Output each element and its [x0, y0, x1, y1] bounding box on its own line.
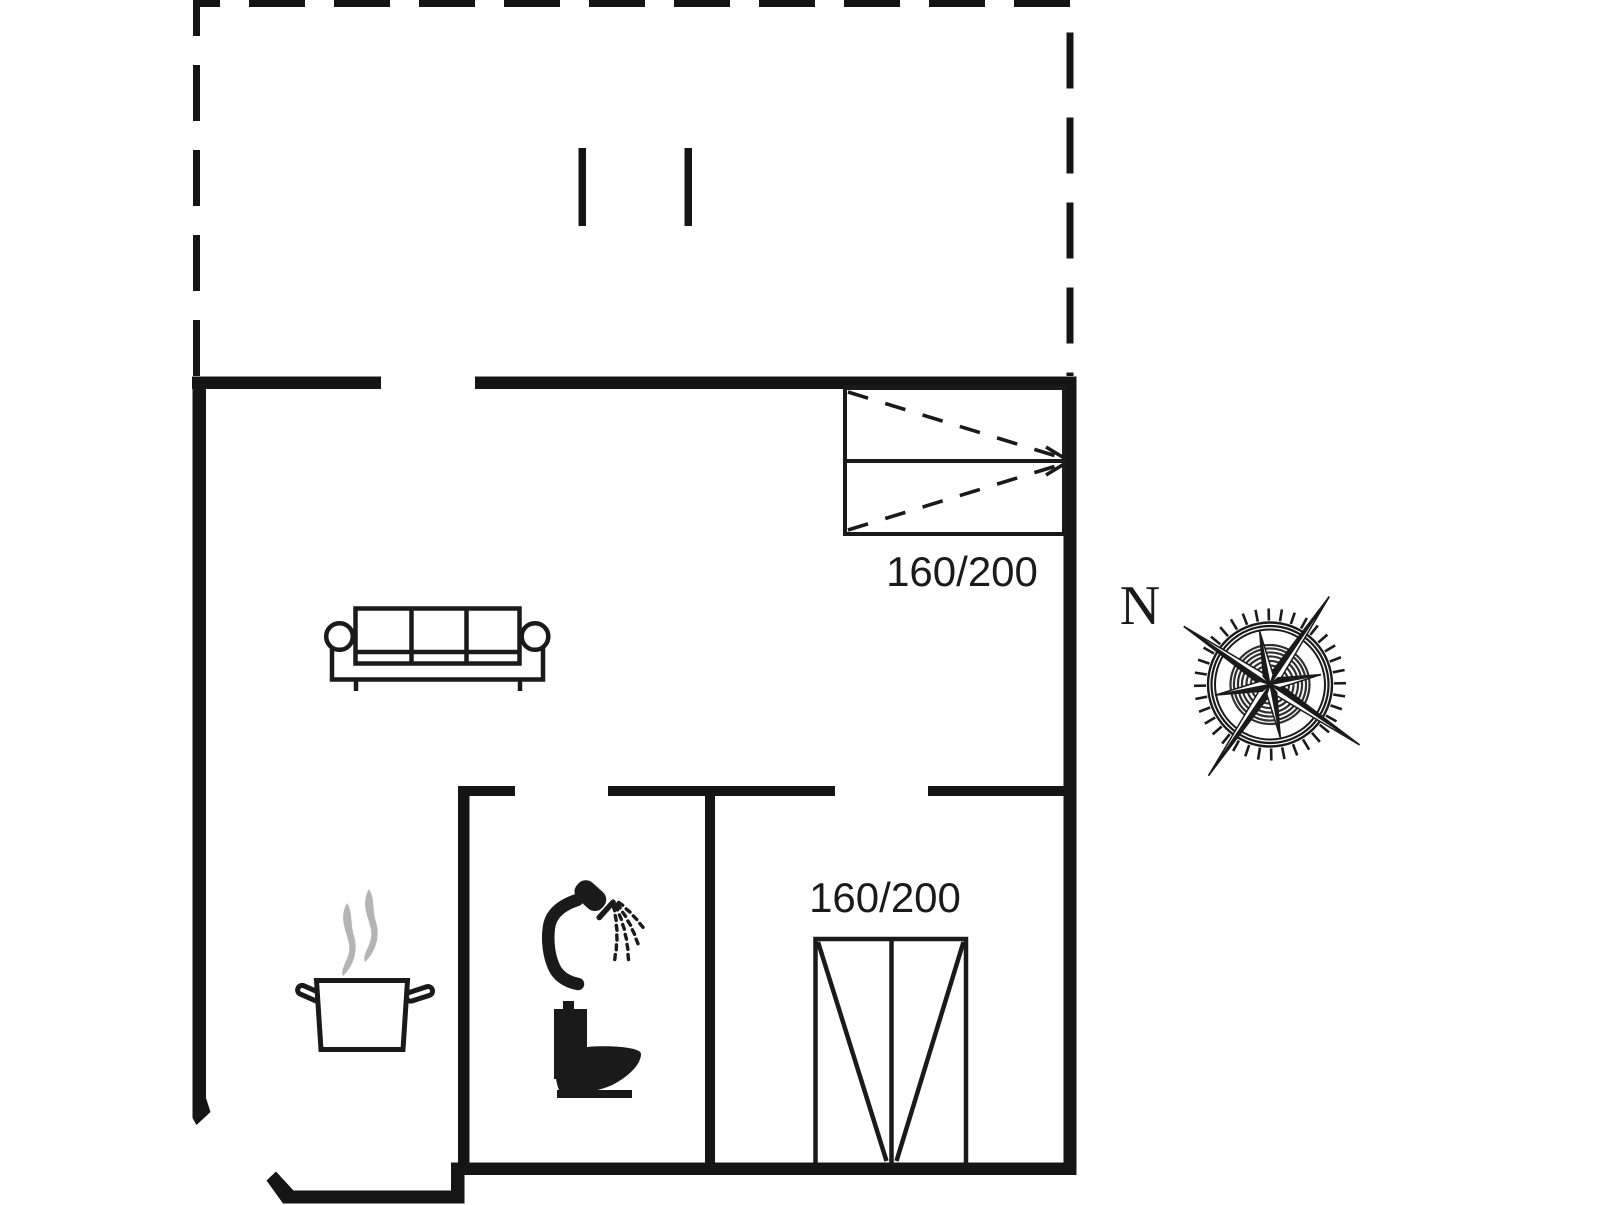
svg-text:N: N [1120, 575, 1160, 637]
svg-text:160/200: 160/200 [886, 548, 1038, 595]
svg-text:160/200: 160/200 [809, 874, 961, 921]
